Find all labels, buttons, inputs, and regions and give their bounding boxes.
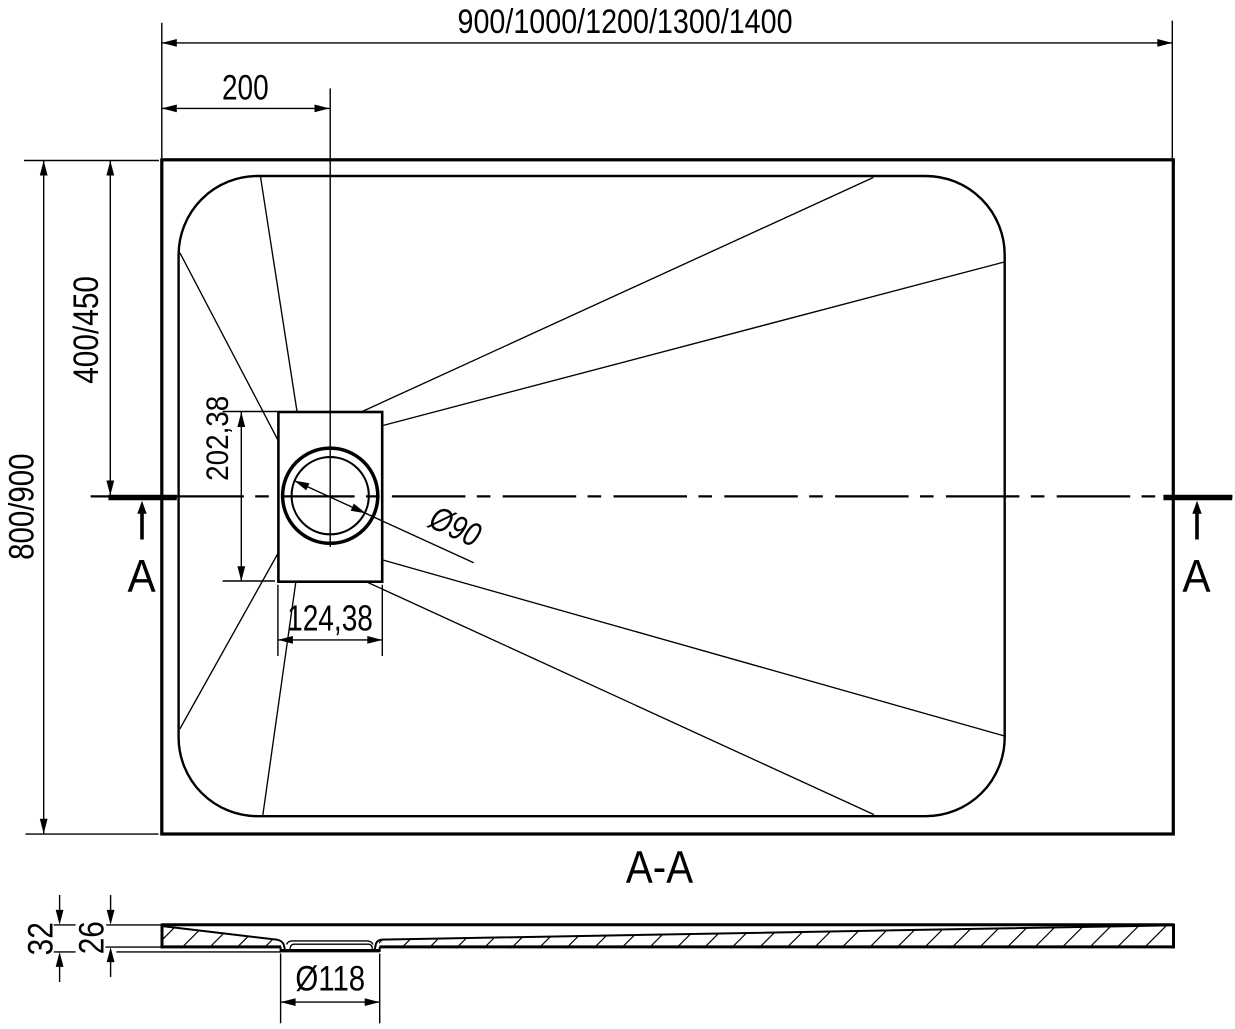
svg-text:900/1000/1200/1300/1400: 900/1000/1200/1300/1400 (457, 1, 792, 40)
svg-text:800/900: 800/900 (2, 454, 41, 560)
svg-text:400/450: 400/450 (65, 276, 105, 384)
svg-text:26: 26 (71, 921, 111, 954)
svg-text:32: 32 (20, 922, 60, 955)
svg-text:A: A (1182, 551, 1211, 602)
svg-text:202,38: 202,38 (200, 396, 235, 481)
svg-text:124,38: 124,38 (287, 598, 373, 638)
svg-text:A-A: A-A (626, 842, 694, 893)
svg-text:A: A (127, 551, 156, 602)
svg-text:200: 200 (222, 68, 269, 108)
svg-text:Ø118: Ø118 (295, 959, 365, 998)
